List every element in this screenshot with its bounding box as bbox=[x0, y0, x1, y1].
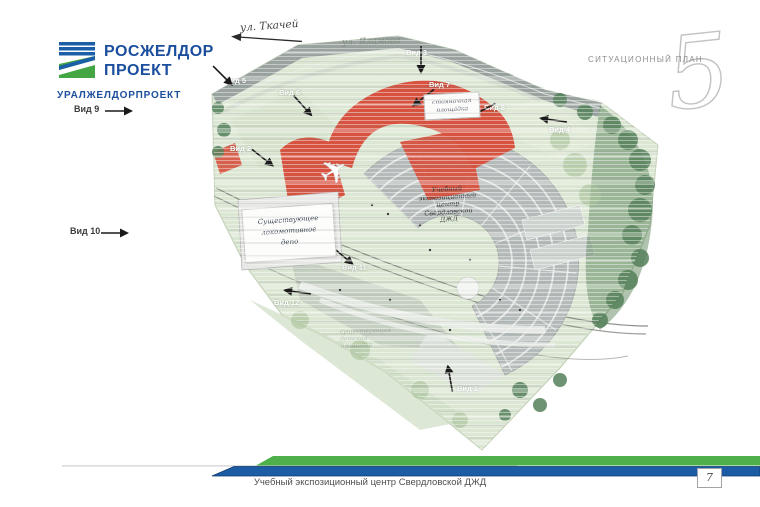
depot-annotation-box: Существующее локомотивное депо bbox=[241, 203, 337, 263]
view-marker-label-10: Вид 10 bbox=[70, 226, 100, 236]
logo-org-name: УРАЛЖЕЛДОРПРОЕКТ bbox=[57, 90, 181, 101]
logo-line-1: РОСЖЕЛДОР bbox=[104, 42, 214, 61]
logo-line-2: ПРОЕКТ bbox=[104, 61, 214, 80]
parking-annotation-box: стояночная площадка bbox=[423, 92, 480, 121]
view-marker-label-1: Вид 1 bbox=[457, 384, 478, 393]
playground-annotation: существующая детская площадка bbox=[340, 325, 437, 349]
building-title-annotation: Учебный экспозиционный центр Свердловско… bbox=[395, 182, 501, 227]
view-arrow-icon-10 bbox=[100, 227, 130, 239]
view-arrow-icon-3 bbox=[415, 45, 427, 75]
logo-company-name: РОСЖЕЛДОР ПРОЕКТ bbox=[104, 42, 214, 80]
view-arrow-icon-9 bbox=[104, 105, 134, 117]
footer-project-title: Учебный экспозиционный центр Свердловско… bbox=[180, 477, 560, 488]
street-label-yalamova: ул. Яламова bbox=[342, 36, 401, 48]
view-marker-label-9: Вид 9 bbox=[74, 104, 99, 114]
sheet-number-watermark: 5 bbox=[638, 12, 748, 127]
sheet-title: СИТУАЦИОННЫЙ ПЛАН bbox=[588, 55, 703, 64]
roszheldor-logo-mark bbox=[57, 40, 97, 80]
svg-text:5: 5 bbox=[660, 12, 736, 127]
presentation-sheet: ✈ РОС bbox=[0, 0, 760, 507]
page-number: 7 bbox=[706, 471, 713, 484]
view-marker-label-12: Вид 12 bbox=[274, 298, 299, 307]
page-number-box: 7 bbox=[697, 468, 722, 488]
